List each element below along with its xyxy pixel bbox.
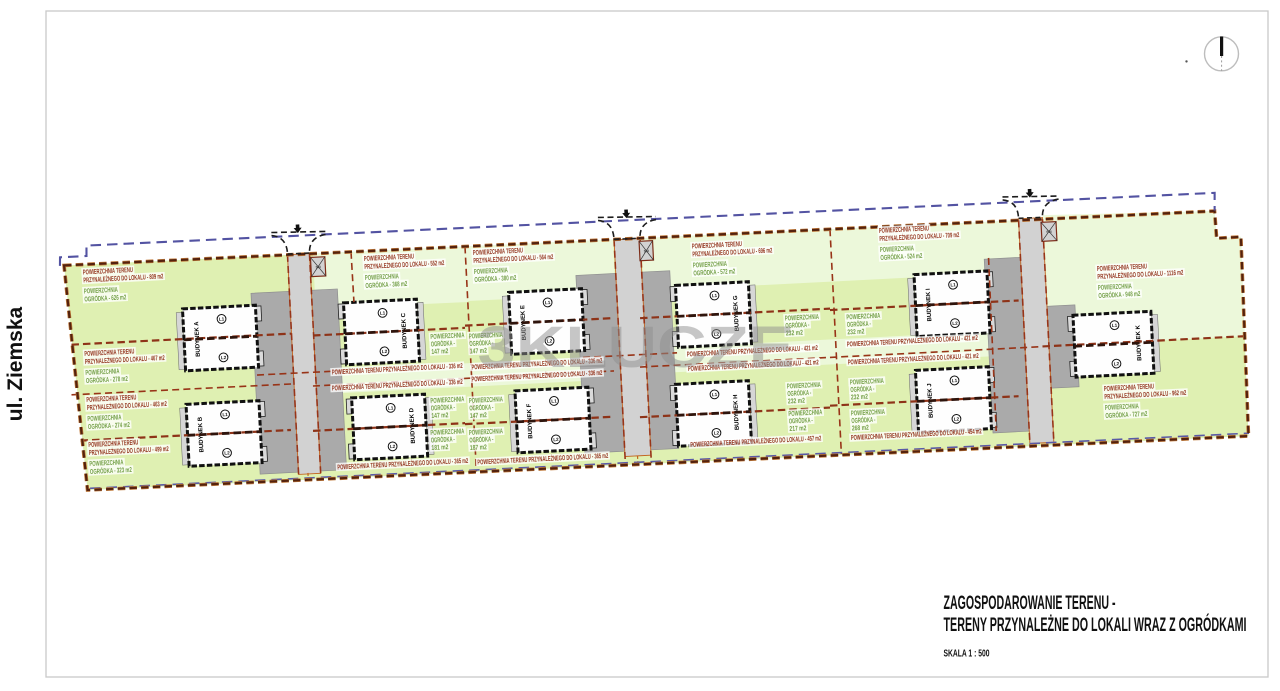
svg-text:L1: L1 bbox=[380, 310, 386, 315]
svg-text:232 m2: 232 m2 bbox=[847, 329, 864, 337]
svg-text:L1: L1 bbox=[388, 405, 394, 410]
svg-text:L2: L2 bbox=[553, 437, 559, 442]
svg-text:L1: L1 bbox=[952, 378, 958, 383]
svg-text:L1: L1 bbox=[712, 293, 718, 298]
svg-text:187 m2: 187 m2 bbox=[470, 444, 487, 452]
svg-text:L1: L1 bbox=[1112, 323, 1118, 328]
svg-text:SM: SM bbox=[315, 265, 321, 269]
svg-text:SM: SM bbox=[644, 249, 650, 253]
svg-text:L2: L2 bbox=[1114, 361, 1120, 366]
svg-text:147 m2: 147 m2 bbox=[431, 412, 448, 420]
svg-text:147 m2: 147 m2 bbox=[470, 412, 487, 420]
svg-text:SM: SM bbox=[1046, 230, 1052, 234]
svg-text:L2: L2 bbox=[390, 444, 396, 449]
svg-text:232 m2: 232 m2 bbox=[788, 398, 805, 406]
svg-text:L1: L1 bbox=[219, 316, 225, 321]
svg-text:181 m2: 181 m2 bbox=[431, 444, 448, 452]
svg-text:L2: L2 bbox=[382, 349, 388, 354]
svg-text:L2: L2 bbox=[714, 430, 720, 435]
svg-text:TERENY PRZYNALEŻNE DO LOKALI W: TERENY PRZYNALEŻNE DO LOKALI WRAZ Z OGRÓ… bbox=[944, 612, 1247, 636]
svg-text:L2: L2 bbox=[221, 355, 227, 360]
svg-text:L1: L1 bbox=[551, 398, 557, 403]
svg-text:L1: L1 bbox=[545, 300, 551, 305]
svg-text:L1: L1 bbox=[950, 282, 956, 287]
svg-text:268 m2: 268 m2 bbox=[852, 425, 869, 433]
svg-text:L2: L2 bbox=[954, 416, 960, 421]
svg-text:3KLUCZE: 3KLUCZE bbox=[478, 315, 795, 380]
svg-text:L1: L1 bbox=[222, 412, 228, 417]
svg-text:L1: L1 bbox=[712, 392, 718, 397]
svg-text:SKALA 1 : 500: SKALA 1 : 500 bbox=[944, 648, 990, 660]
svg-text:ul. Ziemska: ul. Ziemska bbox=[4, 306, 27, 421]
svg-text:232 m2: 232 m2 bbox=[851, 394, 868, 402]
svg-text:L2: L2 bbox=[224, 450, 230, 455]
svg-text:L2: L2 bbox=[952, 321, 958, 326]
svg-text:ZAGOSPODAROWANIE TERENU -: ZAGOSPODAROWANIE TERENU - bbox=[944, 592, 1116, 614]
svg-text:217 m2: 217 m2 bbox=[789, 425, 806, 433]
svg-text:147 m2: 147 m2 bbox=[431, 348, 448, 356]
